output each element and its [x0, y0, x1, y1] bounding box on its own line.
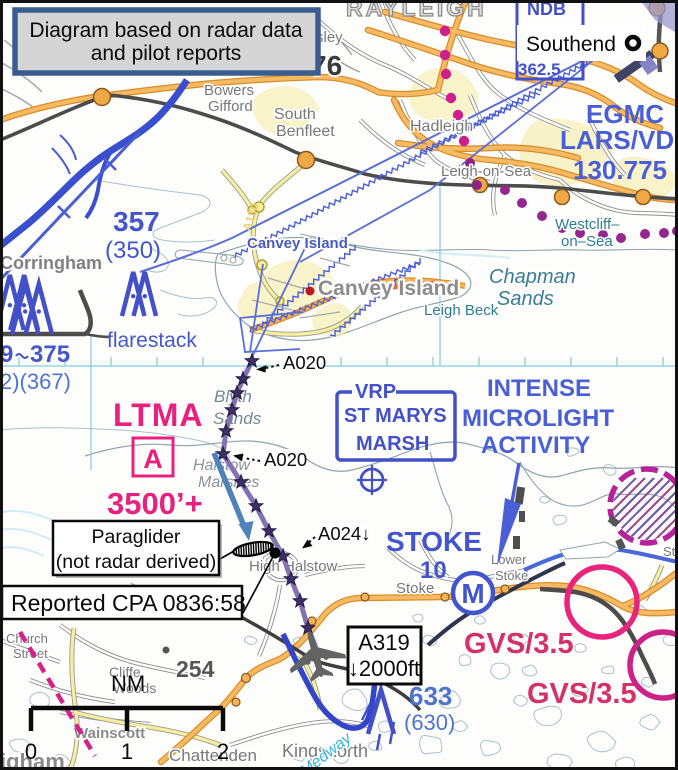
- svg-text:Stoke: Stoke: [495, 568, 528, 583]
- svg-text:A024↓: A024↓: [318, 523, 370, 544]
- svg-text:10: 10: [420, 557, 447, 584]
- svg-text:flarestack: flarestack: [107, 329, 197, 352]
- svg-text:Church: Church: [6, 631, 48, 646]
- svg-text:Southend: Southend: [526, 33, 616, 56]
- svg-text:Leigh Beck: Leigh Beck: [424, 302, 499, 319]
- svg-text:2: 2: [217, 739, 229, 764]
- svg-text:Corringham: Corringham: [0, 253, 102, 273]
- svg-text:GVS/3.5: GVS/3.5: [464, 628, 574, 660]
- svg-text:VRP: VRP: [355, 381, 396, 403]
- svg-text:GVS/3.5: GVS/3.5: [527, 678, 637, 710]
- svg-text:Canvey Island: Canvey Island: [247, 235, 348, 252]
- svg-text:Hadleigh: Hadleigh: [410, 118, 473, 135]
- svg-text:LARS/VDF: LARS/VDF: [560, 125, 678, 155]
- svg-text:Sands: Sands: [497, 288, 554, 310]
- svg-text:RAYLEIGH: RAYLEIGH: [346, 0, 487, 21]
- svg-text:130.775: 130.775: [573, 155, 667, 185]
- svg-text:STOKE: STOKE: [386, 526, 482, 557]
- svg-text:Chattenden: Chattenden: [169, 746, 257, 765]
- svg-text:↓2000ft: ↓2000ft: [348, 656, 420, 681]
- svg-text:(630): (630): [404, 710, 455, 735]
- svg-text:A020: A020: [283, 352, 326, 373]
- svg-text:A319: A319: [358, 630, 409, 655]
- svg-text:Reported CPA 0836:58: Reported CPA 0836:58: [11, 590, 246, 616]
- svg-text:Leigh-on-Sea: Leigh-on-Sea: [441, 163, 532, 180]
- svg-text:High Halstow: High Halstow: [249, 558, 338, 575]
- svg-text:Paraglider: Paraglider: [92, 526, 181, 548]
- svg-text:(not radar derived): (not radar derived): [56, 551, 216, 573]
- svg-text:362.5: 362.5: [518, 60, 561, 79]
- svg-text:South: South: [274, 106, 316, 123]
- svg-text:ST MARYS: ST MARYS: [344, 405, 447, 427]
- svg-text:ACTIVITY: ACTIVITY: [481, 432, 590, 459]
- svg-text:Canvey Island: Canvey Island: [318, 277, 459, 300]
- svg-text:0: 0: [25, 739, 37, 764]
- svg-text:MARSH: MARSH: [356, 433, 429, 455]
- svg-text:Sands: Sands: [213, 409, 262, 428]
- svg-text:MICROLIGHT: MICROLIGHT: [462, 405, 614, 432]
- svg-text:Westcliff–: Westcliff–: [555, 216, 620, 233]
- svg-text:A020: A020: [264, 449, 307, 470]
- svg-text:A: A: [143, 444, 163, 474]
- svg-text:357: 357: [113, 206, 160, 237]
- svg-text:Diagram based on radar data: Diagram based on radar data: [29, 19, 302, 42]
- svg-text:Lower: Lower: [491, 552, 527, 567]
- svg-text:and pilot reports: and pilot reports: [91, 42, 242, 65]
- svg-text:1: 1: [121, 739, 133, 764]
- svg-text:Wainscott: Wainscott: [74, 725, 145, 742]
- svg-text:3500’+: 3500’+: [107, 486, 203, 521]
- svg-text:(350): (350): [105, 237, 161, 264]
- svg-text:2)(367): 2)(367): [0, 369, 71, 394]
- svg-text:Gifford: Gifford: [208, 98, 253, 115]
- svg-text:254: 254: [176, 656, 215, 682]
- svg-text:M: M: [461, 578, 484, 609]
- svg-text:Benfleet: Benfleet: [276, 123, 335, 140]
- svg-text:INTENSE: INTENSE: [487, 375, 591, 402]
- svg-text:on–Sea: on–Sea: [561, 233, 613, 250]
- svg-text:NM: NM: [111, 671, 145, 696]
- svg-text:375: 375: [30, 341, 70, 368]
- svg-text:Chapman: Chapman: [489, 266, 576, 288]
- svg-text:Bowers: Bowers: [204, 82, 254, 99]
- svg-text:LTMA: LTMA: [113, 397, 203, 433]
